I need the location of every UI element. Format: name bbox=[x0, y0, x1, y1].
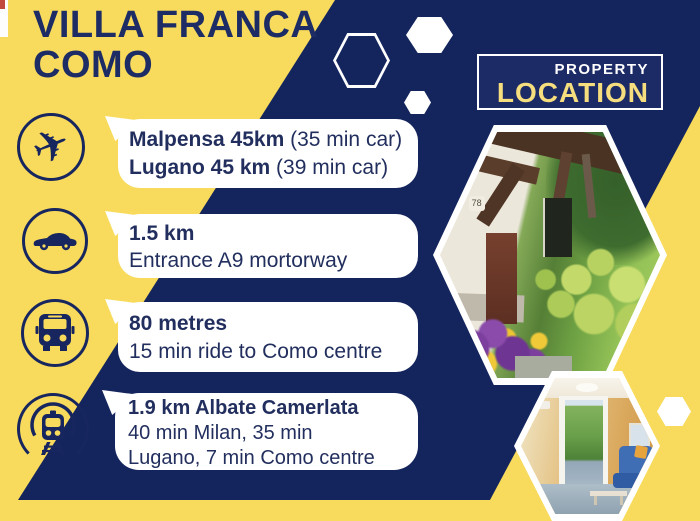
distance-note: Entrance A9 mortorway bbox=[129, 249, 347, 272]
title-line-1: VILLA FRANCA bbox=[33, 5, 318, 45]
sofa-pillow bbox=[634, 445, 648, 459]
distance-note: (39 min car) bbox=[270, 156, 388, 179]
bubble-line: 40 min Milan, 35 min bbox=[128, 421, 418, 446]
hexagon-white-right bbox=[657, 397, 691, 426]
distance-note: (35 min car) bbox=[284, 128, 402, 151]
balcony-view bbox=[565, 400, 603, 487]
distance-value: Lugano 45 km bbox=[129, 156, 270, 179]
train-glyph bbox=[29, 402, 77, 456]
property-location-badge: PROPERTY LOCATION bbox=[477, 54, 663, 110]
bubble-line: 80 metres bbox=[129, 310, 418, 338]
infographic-canvas: { "colors": { "yellow": "#F8DB5C", "navy… bbox=[0, 0, 700, 500]
distance-note: 40 min Milan, 35 min bbox=[128, 422, 313, 444]
car-icon bbox=[22, 208, 88, 274]
bubble-line: 1.5 km bbox=[129, 220, 418, 247]
airport-distance-bubble: Malpensa 45km (35 min car) Lugano 45 km … bbox=[118, 119, 418, 188]
bubble-line: Malpensa 45km (35 min car) bbox=[129, 126, 418, 154]
bubble-line: 1.9 km Albate Camerlata bbox=[128, 396, 418, 421]
title-line-2: COMO bbox=[33, 45, 318, 85]
edge-artifact-red bbox=[0, 0, 5, 9]
plane-icon: ✈ bbox=[17, 113, 85, 181]
distance-value: 80 metres bbox=[129, 312, 227, 335]
train-distance-bubble: 1.9 km Albate Camerlata 40 min Milan, 35… bbox=[115, 393, 418, 470]
badge-location-label: LOCATION bbox=[479, 78, 649, 108]
floor bbox=[521, 484, 653, 514]
train-icon bbox=[17, 393, 89, 465]
bubble-line: Lugano, 7 min Como centre bbox=[128, 446, 418, 471]
plane-glyph: ✈ bbox=[26, 120, 77, 175]
motorway-distance-bubble: 1.5 km Entrance A9 mortorway bbox=[118, 214, 418, 278]
bus-glyph bbox=[35, 312, 75, 354]
distance-note: 15 min ride to Como centre bbox=[129, 340, 382, 363]
hexagon-outline-inner bbox=[336, 36, 387, 85]
bubble-line: Entrance A9 mortorway bbox=[129, 247, 418, 274]
photo-living-room bbox=[521, 378, 653, 514]
page-title: VILLA FRANCA COMO bbox=[33, 5, 318, 85]
car-glyph bbox=[32, 229, 78, 253]
bus-distance-bubble: 80 metres 15 min ride to Como centre bbox=[118, 302, 418, 372]
bubble-line: 15 min ride to Como centre bbox=[129, 338, 418, 366]
distance-value: 1.5 km bbox=[129, 222, 194, 245]
distance-value: Malpensa 45km bbox=[129, 128, 284, 151]
distance-note: Lugano, 7 min Como centre bbox=[128, 447, 375, 469]
badge-property-label: PROPERTY bbox=[479, 61, 649, 78]
distance-value: 1.9 km Albate Camerlata bbox=[128, 397, 358, 419]
coffee-table bbox=[590, 491, 627, 496]
bus-icon bbox=[21, 299, 89, 367]
bubble-line: Lugano 45 km (39 min car) bbox=[129, 154, 418, 182]
sofa-seat bbox=[613, 473, 653, 488]
ceiling-lamp bbox=[576, 383, 597, 391]
